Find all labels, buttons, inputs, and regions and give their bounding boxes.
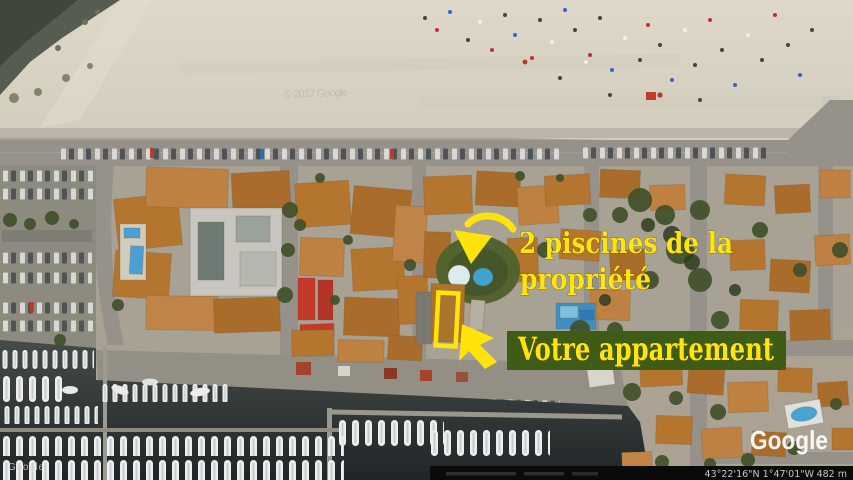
status-coordinates: 43°22'16"N 1°47'01"W — [705, 469, 815, 480]
google-watermark-small: Google — [8, 462, 44, 473]
ghost-watermark: © 2017 Google — [284, 87, 348, 101]
pools-label-line1: 2 piscines de la — [519, 226, 733, 260]
google-earth-viewport[interactable]: © 2017 Google — [0, 0, 853, 480]
apartment-label: Votre appartement — [517, 330, 774, 368]
status-elevation: 482 m — [817, 469, 847, 480]
parked-cars-top — [60, 145, 770, 161]
google-logo[interactable]: Google — [750, 425, 828, 455]
status-bar: 43°22'16"N 1°47'01"W 482 m — [430, 466, 853, 480]
parking-lots-left — [0, 166, 96, 356]
beach — [0, 0, 853, 146]
satellite-map[interactable]: © 2017 Google — [0, 0, 853, 480]
pools-label-line2: propriété — [520, 262, 651, 296]
